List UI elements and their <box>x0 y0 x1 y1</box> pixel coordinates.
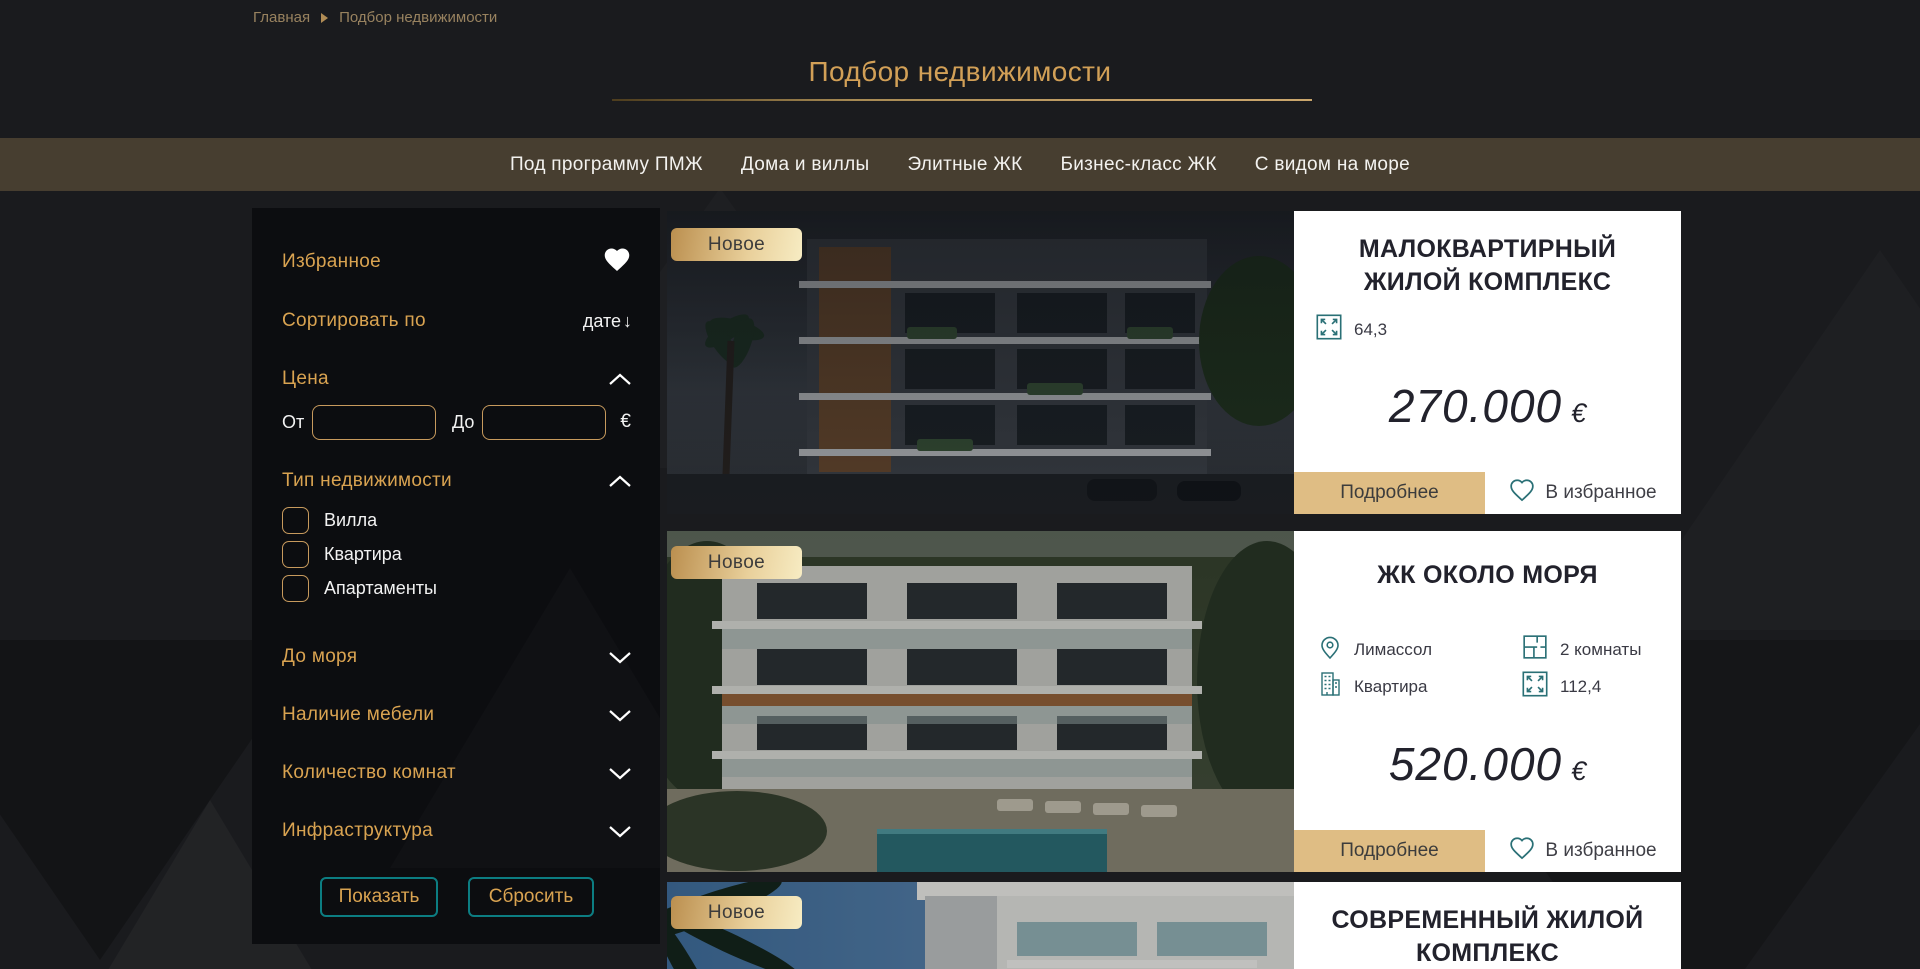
sort-row: Сортировать по дате↓ <box>282 308 632 334</box>
price-range-controls: От До € <box>282 404 631 440</box>
sidebar-actions: Показать Сбросить <box>252 877 660 917</box>
rooms-value: 2 комнаты <box>1560 640 1641 660</box>
chevron-up-icon <box>608 373 632 386</box>
reset-button[interactable]: Сбросить <box>468 877 594 917</box>
category-nav: Под программу ПМЖ Дома и виллы Элитные Ж… <box>0 138 1920 191</box>
heart-icon <box>602 246 632 278</box>
add-to-favorites-button[interactable]: В избранное <box>1485 830 1681 872</box>
property-photo[interactable]: Новое <box>667 531 1294 872</box>
new-badge: Новое <box>671 546 802 579</box>
favorite-label: В избранное <box>1545 482 1656 504</box>
nav-item-pmj-program[interactable]: Под программу ПМЖ <box>510 154 703 176</box>
details-button[interactable]: Подробнее <box>1294 472 1485 514</box>
building-icon <box>1318 671 1342 702</box>
type-attribute: Квартира <box>1318 671 1427 702</box>
breadcrumb-home-link[interactable]: Главная <box>253 9 310 26</box>
price-to-label: До <box>452 412 474 433</box>
nav-item-sea-view[interactable]: С видом на море <box>1255 154 1410 176</box>
favorite-label: В избранное <box>1545 840 1656 862</box>
currency-label: € <box>620 411 631 433</box>
add-to-favorites-button[interactable]: В избранное <box>1485 472 1681 514</box>
nav-item-houses-villas[interactable]: Дома и виллы <box>741 154 870 176</box>
price-from-input[interactable] <box>312 405 436 440</box>
favorites-label: Избранное <box>282 251 381 273</box>
checkbox-row-apartment: Квартира <box>282 540 402 568</box>
section-header-property-type[interactable]: Тип недвижимости <box>282 468 632 494</box>
price-from-label: От <box>282 412 304 433</box>
infrastructure-label: Инфраструктура <box>282 820 433 842</box>
breadcrumb-separator-icon <box>321 13 328 23</box>
price-section-label: Цена <box>282 368 329 390</box>
location-value: Лимассол <box>1354 640 1432 660</box>
price-value: 270.000 <box>1389 380 1562 432</box>
section-header-infrastructure[interactable]: Инфраструктура <box>282 818 632 844</box>
area-expand-icon <box>1522 671 1548 702</box>
sort-direction-icon: ↓ <box>623 311 632 332</box>
section-header-furniture[interactable]: Наличие мебели <box>282 702 632 728</box>
heart-outline-icon <box>1509 836 1535 866</box>
area-expand-icon <box>1316 314 1342 345</box>
chevron-down-icon <box>608 825 632 838</box>
breadcrumb: Главная Подбор недвижимости <box>253 9 497 26</box>
new-badge: Новое <box>671 896 802 929</box>
location-attribute: Лимассол <box>1318 634 1432 665</box>
villa-checkbox[interactable] <box>282 507 309 534</box>
price-currency: € <box>1571 398 1586 428</box>
page: Главная Подбор недвижимости Подбор недви… <box>0 0 1920 969</box>
property-photo[interactable]: Новое <box>667 882 1294 969</box>
chevron-down-icon <box>608 651 632 664</box>
area-attribute: 112,4 <box>1522 671 1601 702</box>
section-header-sea-distance[interactable]: До моря <box>282 644 632 670</box>
sea-distance-label: До моря <box>282 646 357 668</box>
details-button[interactable]: Подробнее <box>1294 830 1485 872</box>
apartments-checkbox[interactable] <box>282 575 309 602</box>
villa-checkbox-label[interactable]: Вилла <box>324 510 377 531</box>
property-type-label: Тип недвижимости <box>282 470 452 492</box>
property-photo[interactable]: Новое <box>667 211 1294 514</box>
building-photo-pool <box>667 531 1294 872</box>
price-to-input[interactable] <box>482 405 606 440</box>
checkbox-row-villa: Вилла <box>282 506 377 534</box>
property-card: Новое МАЛОКВАРТИРНЫЙ ЖИЛОЙ КОМПЛЕКС 64,3… <box>667 211 1681 514</box>
checkbox-row-apartments: Апартаменты <box>282 574 437 602</box>
apartments-checkbox-label[interactable]: Апартаменты <box>324 578 437 599</box>
area-value: 64,3 <box>1354 320 1387 340</box>
show-button[interactable]: Показать <box>320 877 438 917</box>
apartment-checkbox-label[interactable]: Квартира <box>324 544 402 565</box>
property-card: Новое СОВРЕМЕННЫЙ ЖИЛОЙ КОМПЛЕКС <box>667 882 1681 969</box>
sort-label: Сортировать по <box>282 310 426 332</box>
apartment-checkbox[interactable] <box>282 541 309 568</box>
chevron-down-icon <box>608 767 632 780</box>
breadcrumb-current: Подбор недвижимости <box>339 9 497 26</box>
chevron-down-icon <box>608 709 632 722</box>
property-title: МАЛОКВАРТИРНЫЙ ЖИЛОЙ КОМПЛЕКС <box>1294 211 1681 299</box>
chevron-up-icon <box>608 475 632 488</box>
card-actions: Подробнее В избранное <box>1294 472 1681 514</box>
property-info: СОВРЕМЕННЫЙ ЖИЛОЙ КОМПЛЕКС <box>1294 882 1681 969</box>
rooms-attribute: 2 комнаты <box>1522 634 1641 665</box>
heart-outline-icon <box>1509 478 1535 508</box>
area-attribute: 64,3 <box>1316 314 1387 345</box>
area-value: 112,4 <box>1560 677 1601 697</box>
new-badge: Новое <box>671 228 802 261</box>
property-title: СОВРЕМЕННЫЙ ЖИЛОЙ КОМПЛЕКС <box>1294 882 1681 969</box>
section-header-rooms[interactable]: Количество комнат <box>282 760 632 786</box>
filters-sidebar: Избранное Сортировать по дате↓ Цена От Д… <box>252 208 660 944</box>
price: 270.000€ <box>1294 379 1681 433</box>
property-title: ЖК ОКОЛО МОРЯ <box>1294 531 1681 592</box>
favorites-row[interactable]: Избранное <box>282 246 632 278</box>
sort-value[interactable]: дате↓ <box>583 311 632 332</box>
rooms-label: Количество комнат <box>282 762 456 784</box>
card-actions: Подробнее В избранное <box>1294 830 1681 872</box>
price-currency: € <box>1571 756 1586 786</box>
property-info: МАЛОКВАРТИРНЫЙ ЖИЛОЙ КОМПЛЕКС 64,3 270.0… <box>1294 211 1681 514</box>
property-info: ЖК ОКОЛО МОРЯ Лимассол Квартира <box>1294 531 1681 872</box>
furniture-label: Наличие мебели <box>282 704 434 726</box>
price: 520.000€ <box>1294 737 1681 791</box>
title-underline <box>612 99 1312 101</box>
page-title: Подбор недвижимости <box>0 56 1920 88</box>
property-card: Новое ЖК ОКОЛО МОРЯ Лимассол Квартира <box>667 531 1681 872</box>
price-value: 520.000 <box>1389 738 1562 790</box>
type-value: Квартира <box>1354 677 1427 697</box>
nav-item-elite-complexes[interactable]: Элитные ЖК <box>907 154 1022 176</box>
location-pin-icon <box>1318 634 1342 665</box>
floorplan-icon <box>1522 634 1548 665</box>
section-header-price[interactable]: Цена <box>282 366 632 392</box>
nav-item-business-class[interactable]: Бизнес-класс ЖК <box>1060 154 1216 176</box>
